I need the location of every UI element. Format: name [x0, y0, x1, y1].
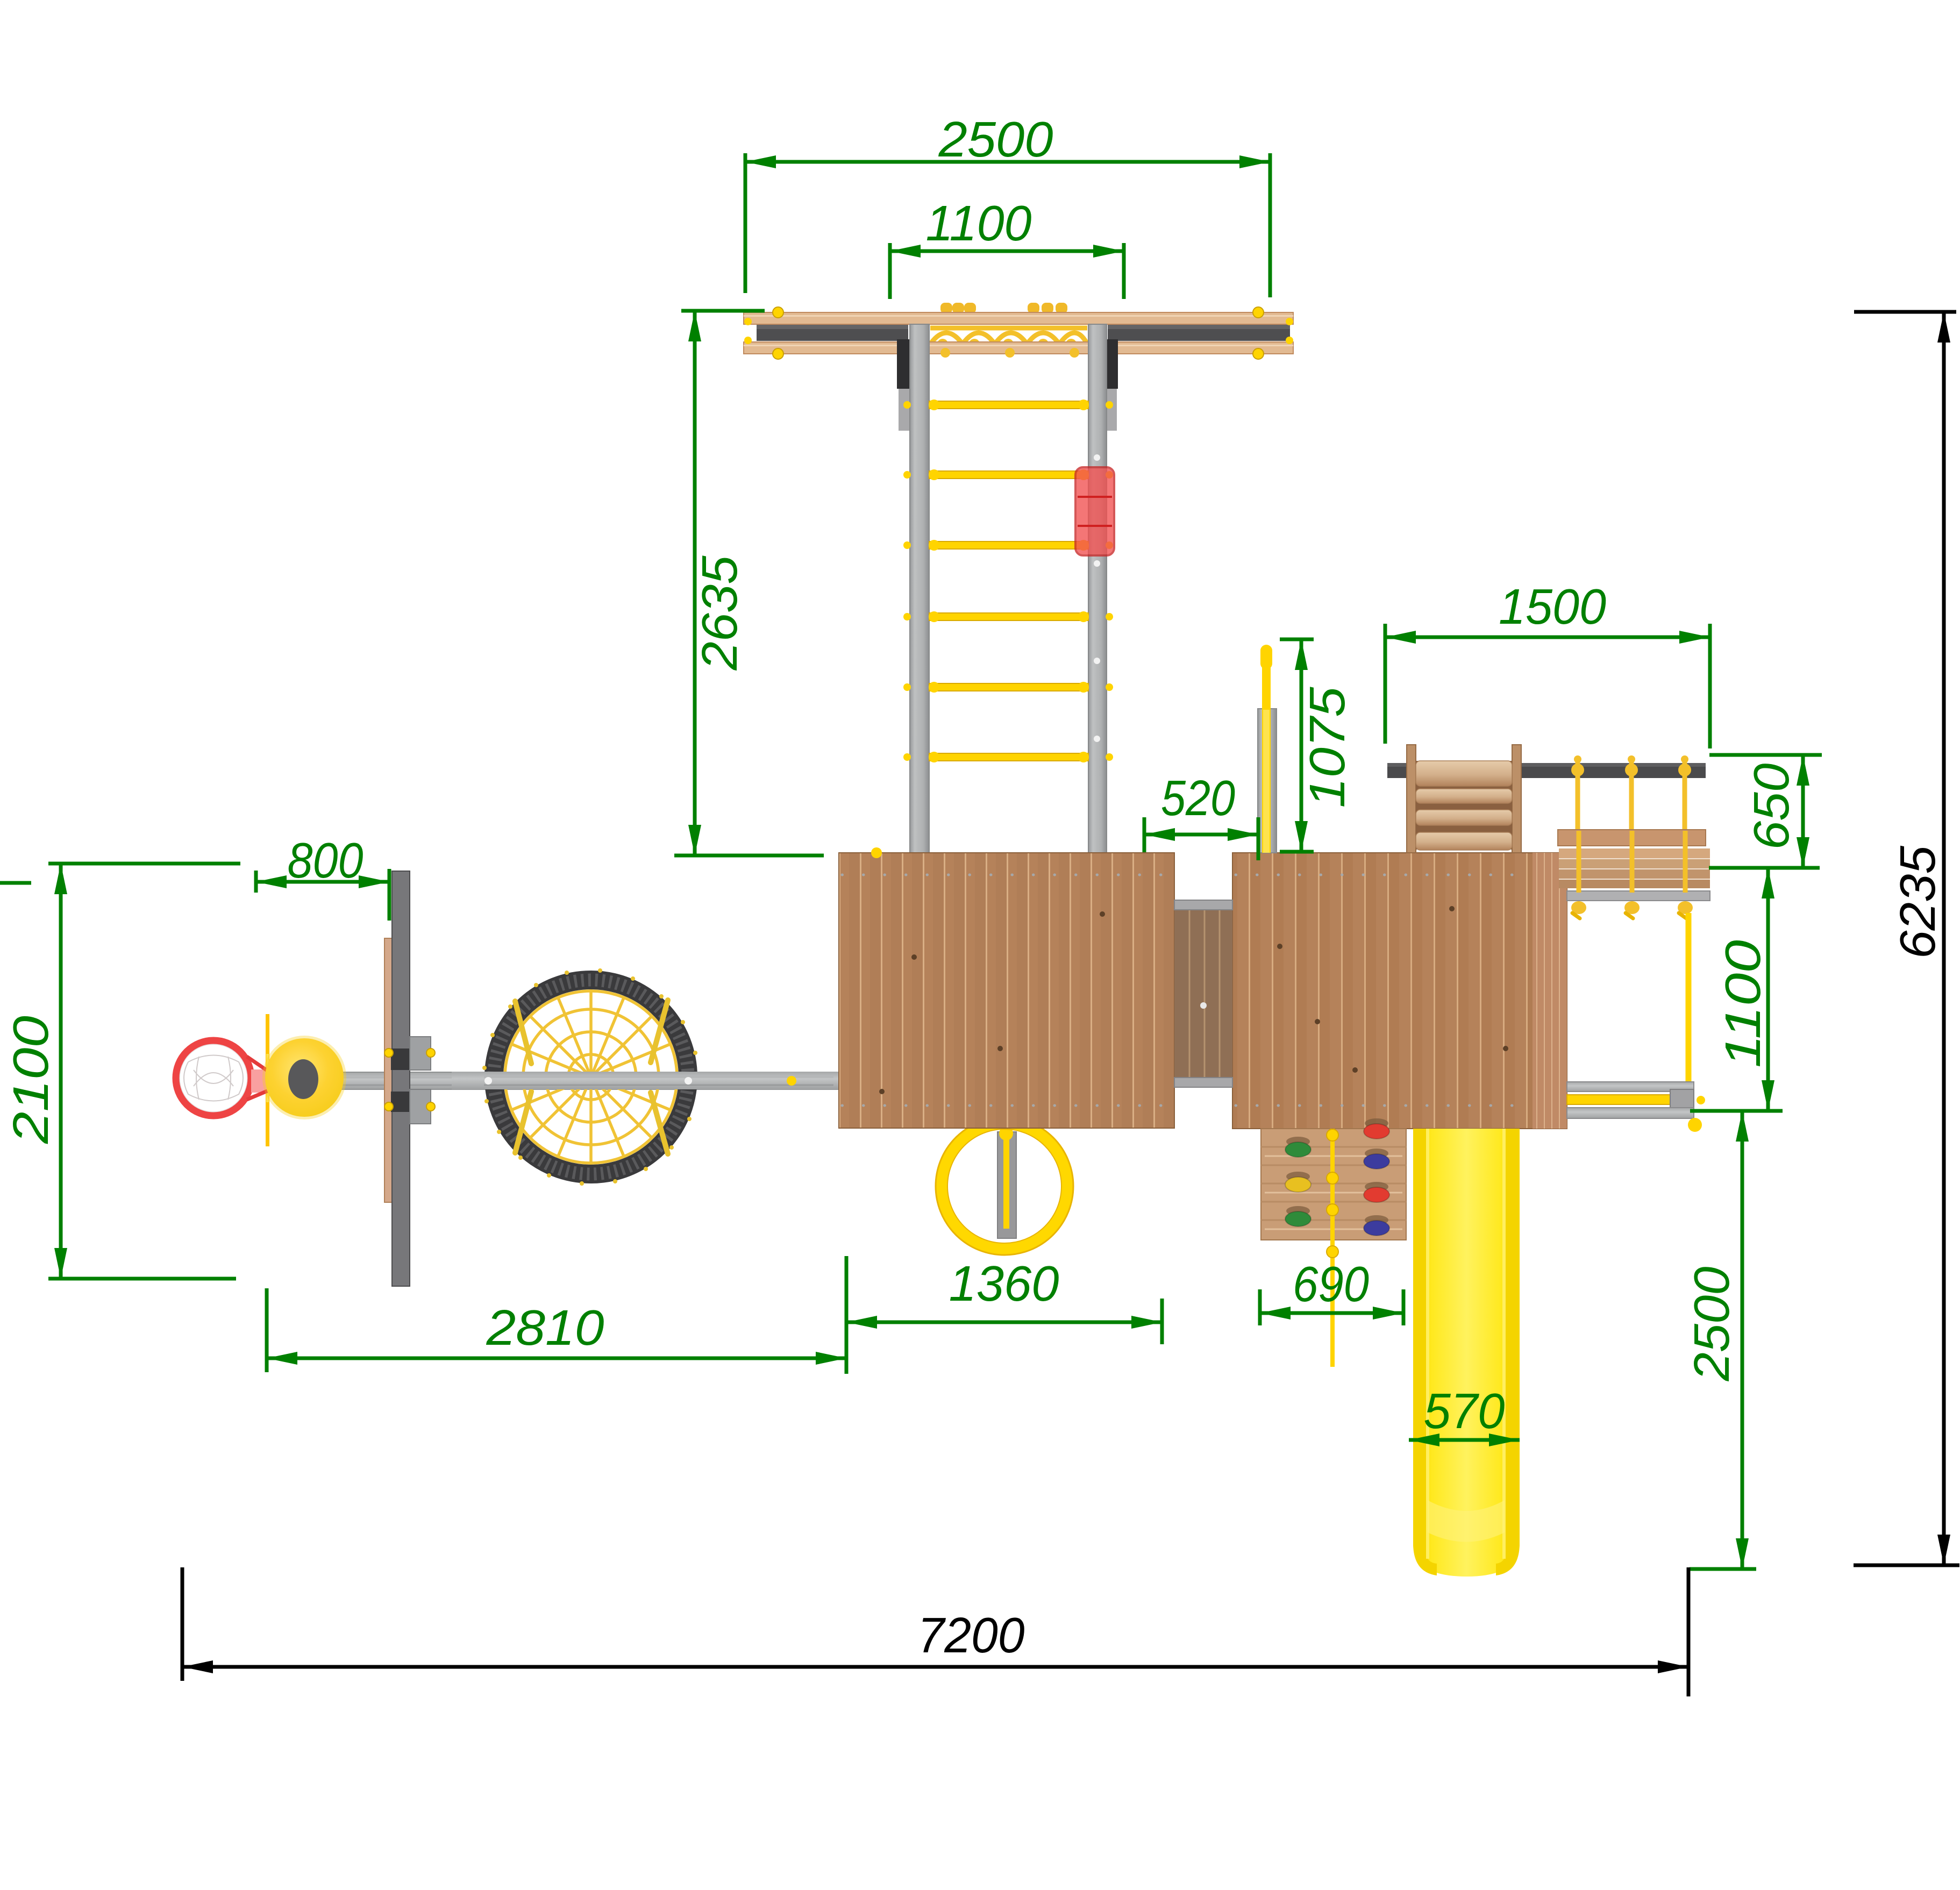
svg-text:1075: 1075: [1299, 687, 1355, 808]
svg-text:2810: 2810: [486, 1300, 604, 1356]
svg-text:800: 800: [288, 832, 364, 888]
svg-text:6235: 6235: [1890, 846, 1945, 959]
svg-text:2500: 2500: [938, 111, 1053, 167]
svg-text:520: 520: [1161, 770, 1235, 826]
svg-text:570: 570: [1424, 1383, 1505, 1439]
svg-text:690: 690: [1293, 1256, 1369, 1312]
svg-text:1100: 1100: [1715, 940, 1771, 1068]
svg-text:650: 650: [1743, 764, 1799, 850]
svg-text:2100: 2100: [3, 1016, 59, 1144]
svg-text:1100: 1100: [926, 195, 1032, 251]
svg-text:2500: 2500: [1684, 1267, 1740, 1382]
svg-text:1500: 1500: [1499, 579, 1606, 634]
svg-text:7200: 7200: [918, 1607, 1025, 1663]
svg-text:1360: 1360: [949, 1256, 1059, 1311]
svg-text:2635: 2635: [692, 555, 747, 671]
